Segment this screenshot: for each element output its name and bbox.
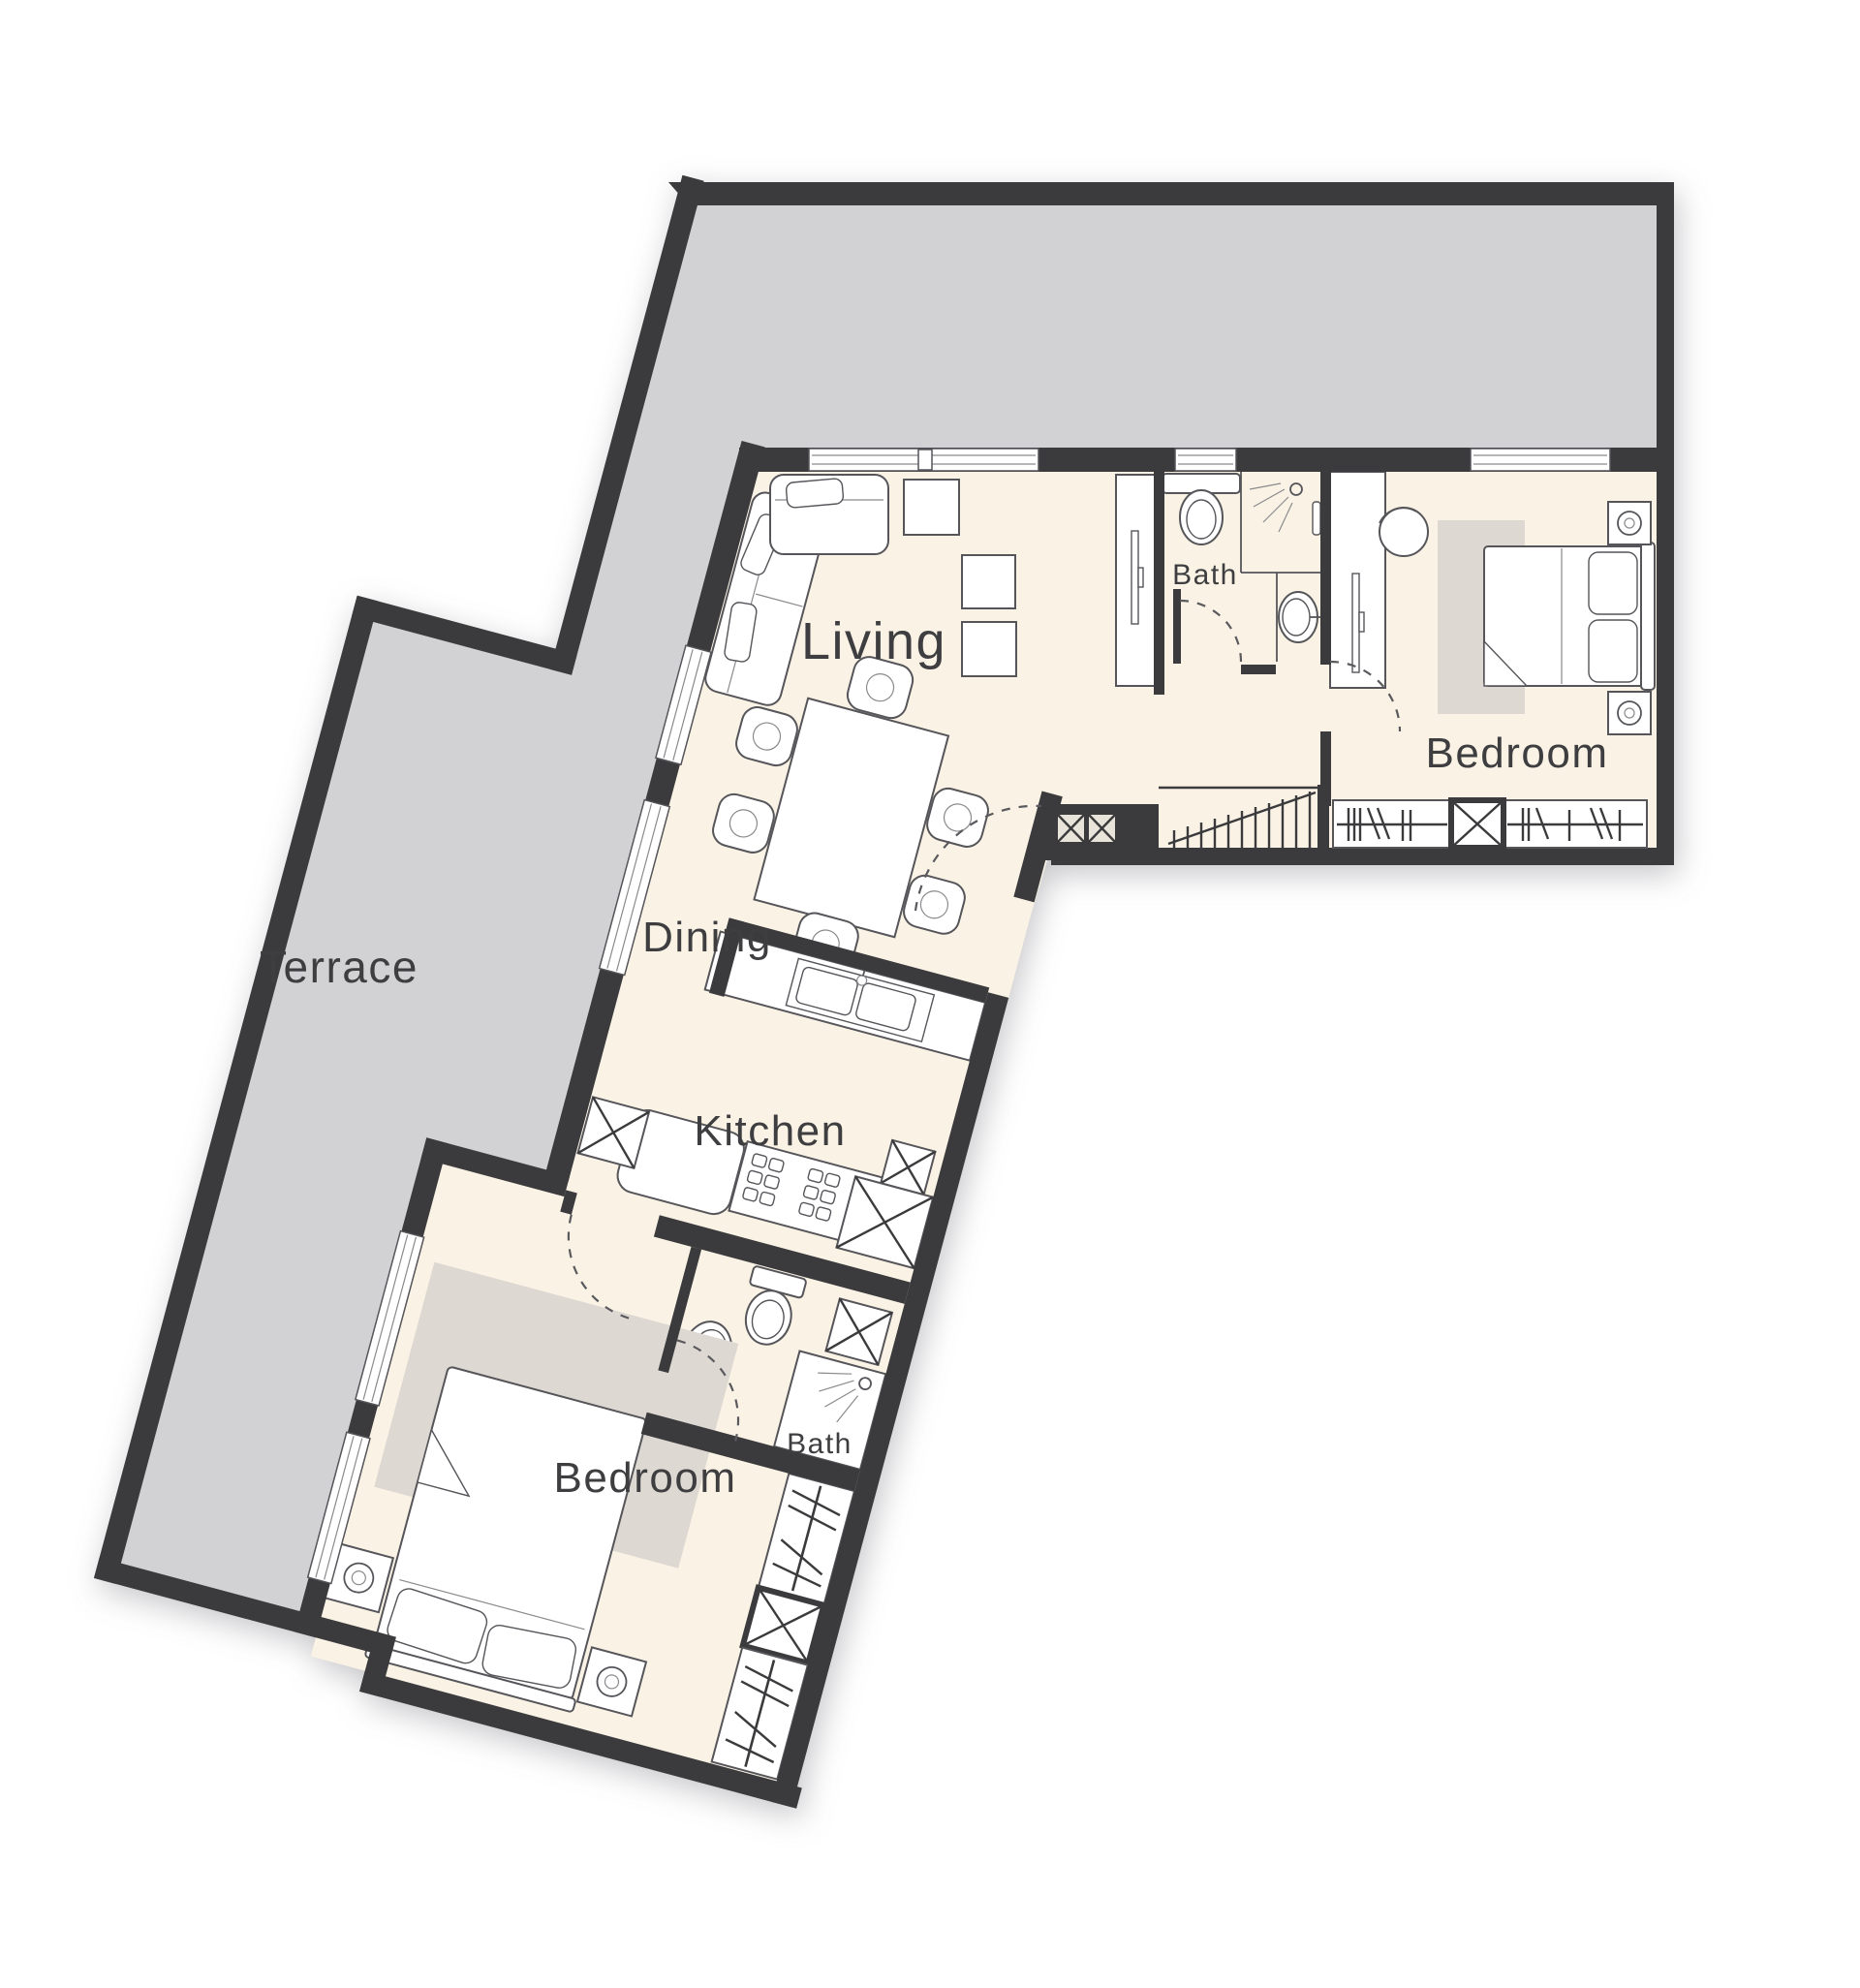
room-label-living: Living: [801, 611, 946, 671]
window-living-top: [809, 449, 1038, 471]
room-label-dining: Dining: [642, 914, 772, 962]
room-label-kitchen: Kitchen: [694, 1107, 846, 1156]
sofa-horizontal-section: [770, 475, 888, 554]
room-label-bath-lower: Bath: [787, 1428, 852, 1461]
room-label-bedroom-lower: Bedroom: [553, 1454, 736, 1503]
coffee-table-2: [962, 555, 1015, 608]
floorplan-drawing: [0, 0, 1860, 1988]
window-bath-top: [1175, 449, 1236, 471]
room-label-bath-upper: Bath: [1172, 559, 1238, 592]
wardrobe-strip-upper-bedroom: [1333, 800, 1647, 848]
coffee-table-3: [962, 622, 1016, 676]
desk-chair-upper: [1379, 508, 1428, 556]
desk-upper-bedroom: [1330, 472, 1385, 688]
bed-upper: [1484, 543, 1655, 690]
wardrobe-x-box-upper: [1451, 800, 1503, 848]
tv-console-living: [1116, 475, 1155, 686]
entry-core: [1044, 804, 1159, 860]
room-label-terrace: Terrace: [260, 941, 418, 993]
nightstand-upper-bottom: [1608, 692, 1651, 734]
floorplan-canvas: Terrace Living Dining Kitchen Bath Bedro…: [0, 0, 1860, 1988]
room-label-bedroom-upper: Bedroom: [1425, 730, 1608, 778]
window-bedroom-top: [1471, 449, 1610, 471]
nightstand-upper-top: [1608, 502, 1651, 544]
coffee-table-1: [904, 480, 959, 535]
